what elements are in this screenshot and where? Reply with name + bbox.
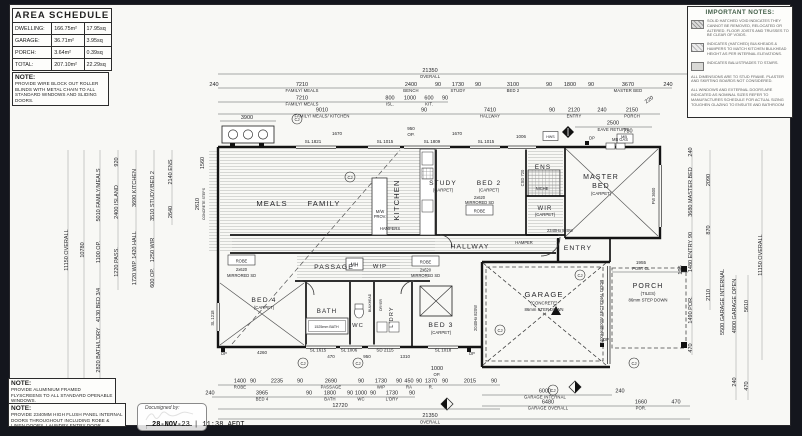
- dim: 90: [475, 82, 481, 88]
- important-note-text: INDICATES BALUSTRADES TO STAIRS.: [707, 61, 778, 71]
- dim: 90: [297, 379, 303, 385]
- robe-size-bed3: 2x620: [420, 268, 432, 273]
- room-label-bed4: BED 4: [251, 297, 276, 304]
- dryer-label: DRYER: [379, 299, 383, 311]
- dim: 2110: [706, 289, 712, 301]
- dim: 2235: [271, 379, 283, 385]
- post-cl-dim: 1955: [636, 260, 647, 265]
- dim: 1420 HALL: [132, 231, 138, 259]
- dim: 10780: [80, 242, 86, 257]
- dim: 90: [546, 82, 552, 88]
- area-row-name: PORCH:: [13, 47, 52, 58]
- dim-label: OP.: [433, 372, 440, 377]
- room-label-bed2: BED 2: [477, 180, 502, 187]
- robe-size-left: 2x620: [236, 267, 248, 272]
- area-row-name: TOTAL:: [13, 59, 52, 70]
- note-title: NOTE:: [15, 74, 106, 81]
- win-1670a: 1670: [332, 131, 343, 136]
- important-note-item: SOLID HATCHED VOID INDICATES THEY CANNOT…: [691, 19, 789, 38]
- room-label-porch: PORCH: [633, 283, 664, 290]
- room-sub-garage: (CONCRETE): [531, 301, 559, 306]
- dim: 240: [615, 389, 624, 395]
- robe-mirror-left: MIRRORED SD: [227, 273, 256, 278]
- dim-label: RA: [406, 385, 412, 390]
- dims-left: 11150 OVERALL 10780 5010 FAMILY/MEALS 11…: [64, 157, 206, 398]
- dim: 5500 GARAGE INTERNAL: [720, 269, 726, 335]
- plot-date-rest: 23 | 11:38 AEDT: [181, 421, 244, 429]
- dim-950b: 950: [363, 354, 371, 359]
- dim-label: WC: [357, 397, 364, 402]
- dim: 90: [370, 391, 376, 397]
- plot-timestamp: 28-NOV-23 | 11:38 AEDT: [152, 421, 244, 429]
- dim: 90: [442, 379, 448, 385]
- dim-label: L'DRY: [386, 397, 399, 402]
- garage-sectional-door: [608, 266, 611, 364]
- dim-label: R.: [429, 385, 434, 390]
- dim-label: WIP: [377, 385, 385, 390]
- dim-label: OVERALL: [420, 74, 441, 79]
- dim: 11150 OVERALL: [758, 234, 764, 275]
- dim: 90: [416, 379, 422, 385]
- dim: 2640: [168, 206, 174, 218]
- room-sub-bed3: (CARPET): [431, 330, 452, 335]
- dim: 3690 KITCHEN: [132, 169, 138, 207]
- floor-plan-drawing: text{fill:#26262a;font-family:"Liberatio…: [0, 0, 802, 436]
- area-row-m2: 166.75m²: [52, 23, 84, 34]
- dim-470b: 470: [327, 354, 335, 359]
- table-row: TOTAL: 207.10m² 22.29sq: [13, 59, 111, 70]
- dim: 240: [688, 147, 694, 156]
- note-body: PROVIDE WIRE BLOCK OUT ROLLER BLINDS WIT…: [15, 81, 106, 104]
- dim-1310: 1310: [400, 354, 411, 359]
- area-row-name: DWELLING:: [13, 23, 52, 34]
- dim: 2500: [607, 121, 619, 127]
- hatch-legend-icon: [691, 43, 704, 52]
- room-sub-bed2: (CARPET): [479, 188, 500, 193]
- mb-box-label: MB: [621, 134, 627, 139]
- dim: 220: [644, 95, 655, 105]
- dim: 240: [663, 82, 672, 88]
- dim: 470: [671, 400, 680, 406]
- dim: 1000: [404, 96, 416, 102]
- win-950: 950: [407, 126, 415, 131]
- dim: 12720: [332, 403, 347, 409]
- win-1006: 1006: [516, 134, 527, 139]
- dim-label: MASTER BED: [614, 88, 643, 93]
- dim: 1250 WIR: [150, 238, 156, 262]
- area-schedule-title: AREA SCHEDULE: [13, 9, 111, 23]
- room-label-master-1: MASTER: [583, 174, 619, 181]
- dim: 3900: [241, 115, 253, 121]
- room-label-entry: ENTRY: [564, 245, 592, 252]
- dim: 4800 GARAGE OPEN: [732, 279, 738, 333]
- note-internal-doors: NOTE: PROVIDE 2340MM HIGH FLUSH PANEL IN…: [8, 403, 126, 427]
- dp-label-bl: DP: [221, 351, 227, 356]
- dim: 1490 POR.: [688, 296, 694, 324]
- room-label-kitchen: KITCHEN: [392, 179, 401, 220]
- room-label-master-2: BED: [592, 183, 610, 190]
- dim: 90: [250, 379, 256, 385]
- dim: 2015: [464, 379, 476, 385]
- room-label-meals: MEALS: [256, 199, 287, 208]
- dp-label-garage: DP: [603, 337, 609, 342]
- dim: 90: [358, 379, 364, 385]
- win-sl1018: SL 1018: [435, 348, 452, 353]
- cj-label: CJ: [300, 361, 305, 366]
- dim: 1100 OP.: [96, 240, 102, 263]
- cj-label: CJ: [550, 388, 555, 393]
- docusign-label: Docusigned by:: [145, 405, 206, 411]
- win-950-op: OP.: [407, 132, 414, 137]
- dim: 5610: [744, 300, 750, 312]
- manhole-label: MH: [351, 263, 359, 269]
- area-row-m2: 36.71m²: [52, 35, 84, 46]
- win-sl1809: SL 1809: [424, 139, 441, 144]
- room-label-ens: ENS: [535, 164, 551, 171]
- cj-label: CJ: [347, 175, 352, 180]
- win-sl1015b: SL 1015: [478, 139, 495, 144]
- dim: 2090: [706, 174, 712, 186]
- dim-label: ROBE: [234, 385, 247, 390]
- room-label-study: STUDY: [429, 180, 457, 187]
- hatch-legend-icon: [691, 62, 704, 71]
- dim: 90: [306, 391, 312, 397]
- dim-label: FAMILY/ MEALS/ KITCHEN: [294, 114, 349, 119]
- dim-label: OVERALL: [420, 420, 441, 425]
- hws-label: HWS: [546, 135, 555, 139]
- microwave-label2: PROV.: [374, 214, 386, 219]
- important-note-item: INDICATES BALUSTRADES TO STAIRS.: [691, 61, 789, 71]
- dp-label-bm: DP: [469, 351, 475, 356]
- robe-label-left: ROBE: [236, 259, 248, 264]
- room-label-ldry: L'DRY: [389, 306, 395, 327]
- cj-label: CJ: [497, 328, 502, 333]
- porch-and-slab-dashed: [483, 263, 686, 365]
- dim: 2140 ENS: [168, 159, 174, 184]
- area-row-sq: 17.95sq: [85, 23, 111, 34]
- note-body: PROVIDE ALUMINIUM FRAMED FLYSCREENS TO A…: [11, 387, 113, 404]
- win-1670b: 1670: [452, 131, 463, 136]
- win-sl1006: SL 1006: [341, 348, 358, 353]
- hampers-label: HAMPERS: [380, 226, 401, 231]
- fw-window-label: FW 3600: [651, 187, 656, 204]
- dp-label-top: DP: [589, 136, 595, 141]
- cj-label: CJ: [355, 361, 360, 366]
- dim-label: PORCH: [624, 114, 640, 119]
- room-sub-study: (CARPET): [433, 188, 454, 193]
- dim: 2610: [195, 198, 201, 210]
- room-step-garage: 86mm STEP DOWN: [524, 307, 563, 312]
- dim-label: ENTRY: [567, 114, 582, 119]
- dim: 1800: [564, 82, 576, 88]
- cj-label: CJ: [577, 273, 582, 278]
- area-row-m2: 3.64m²: [52, 47, 84, 58]
- room-label-hallway: HALLWAY: [451, 244, 490, 251]
- room-label-garage: GARAGE: [524, 290, 563, 299]
- concrete-steps-label: CONCRETE STEPS: [202, 187, 206, 220]
- room-sub-porch: (TILES): [641, 291, 656, 296]
- area-row-m2: 207.10m²: [52, 59, 84, 70]
- dim: 5010 FAMILY/MEALS: [96, 168, 102, 221]
- bulkhead-label: BULKHEAD: [368, 293, 372, 312]
- dim: 90: [688, 232, 694, 238]
- sl1218-window-label: SL 1218: [210, 310, 215, 326]
- room-step-porch: 86mm STEP DOWN: [628, 298, 667, 303]
- hatch-legend-icon: [691, 20, 704, 29]
- dim: 4130 BED 3/4: [96, 288, 102, 322]
- dim-label: GARAGE OVERALL: [528, 406, 569, 411]
- robe-mirror-bed2: MIRRORED SD: [465, 200, 494, 205]
- dim-label: POR.: [636, 406, 647, 411]
- entry-door-label: 2340Hx 820W: [547, 228, 573, 233]
- dim: 1480 ENTRY: [688, 240, 694, 273]
- dim: 2820 BATH/L'DRY: [96, 327, 102, 373]
- dim-label: KIT.: [425, 102, 433, 107]
- dim: 90: [442, 96, 448, 102]
- dim-label: FAMILY/ MEALS: [285, 88, 318, 93]
- win-sd2115: SD 2115: [376, 348, 394, 353]
- sectional-door-label: 2400Hx4800W SECTIONAL DOOR: [599, 280, 604, 345]
- room-label-bath: BATH: [317, 308, 337, 315]
- dim: 195: [678, 265, 684, 274]
- important-note-text: ALL DIMENSIONS ARE TO STUD FRAME. PLASTE…: [691, 75, 789, 85]
- dim: 730: [623, 129, 632, 135]
- important-note-item: ALL WINDOWS AND EXTERNAL DOORS ARE INDIC…: [691, 88, 789, 107]
- dim: 470: [744, 381, 750, 390]
- win-sl1015a: SL 1015: [377, 139, 394, 144]
- table-row: PORCH: 3.64m² 0.39sq: [13, 47, 111, 59]
- dims-top: 21350 OVERALL 240 7210 FAMILY/ MEALS 240…: [209, 68, 672, 135]
- important-note-item: ALL DIMENSIONS ARE TO STUD FRAME. PLASTE…: [691, 75, 789, 85]
- dim-label: BED 2: [507, 88, 520, 93]
- important-note-text: INDICATES (HATCHED) BULKHEADS & HAMPERS …: [707, 42, 789, 56]
- cj-label: CJ: [631, 361, 636, 366]
- dim-label: HALLWAY: [480, 114, 500, 119]
- csd-label: CSD 720: [520, 169, 525, 186]
- dim: 240: [597, 108, 606, 114]
- dim: 3680 MASTER BED: [688, 167, 694, 217]
- hamper-label: HAMPER: [515, 240, 533, 245]
- room-sub-wir: (CARPET): [535, 212, 556, 217]
- dim: 600 OP.: [150, 268, 156, 288]
- important-note-item: INDICATES (HATCHED) BULKHEADS & HAMPERS …: [691, 42, 789, 56]
- dim: 90: [347, 391, 353, 397]
- niche-label: NICHE: [536, 186, 549, 191]
- dim: 90: [435, 82, 441, 88]
- area-row-sq: 3.95sq: [85, 35, 111, 46]
- dim-label: BED 4: [256, 397, 269, 402]
- area-row-name: GARAGE:: [13, 35, 52, 46]
- important-note-text: ALL WINDOWS AND EXTERNAL DOORS ARE INDIC…: [691, 88, 789, 107]
- win-sl1615: SL 1615: [310, 348, 327, 353]
- screenshot-stage: text{fill:#26262a;font-family:"Liberatio…: [0, 0, 802, 436]
- dim-label: BENCH: [403, 88, 418, 93]
- area-row-sq: 22.29sq: [85, 59, 111, 70]
- room-label-wip: WIP: [373, 264, 387, 270]
- dims-right: 240 3680 MASTER BED 90 1480 ENTRY 1490 P…: [678, 147, 764, 390]
- dim-label: FAMILY/ MEALS: [285, 102, 318, 107]
- dim: 240: [205, 391, 214, 397]
- dim: 90: [588, 82, 594, 88]
- room-sub-master: (CARPET): [591, 191, 612, 196]
- table-row: GARAGE: 36.71m² 3.95sq: [13, 35, 111, 47]
- win-sl1821: SL 1821: [305, 139, 322, 144]
- dim: 920: [114, 157, 120, 166]
- dim: 470: [688, 343, 694, 352]
- dim: 1220 PASS.: [114, 247, 120, 277]
- note-blinds: NOTE: PROVIDE WIRE BLOCK OUT ROLLER BLIN…: [12, 72, 109, 106]
- robe-label-bed3: ROBE: [420, 260, 432, 265]
- garage-internal-door-label: 2040Hx 820W: [473, 305, 478, 331]
- bath-tub-label: 1525mm BATH: [314, 325, 339, 329]
- important-notes-box: IMPORTANT NOTES: SOLID HATCHED VOID INDI…: [687, 6, 793, 118]
- dim: 240: [732, 377, 738, 386]
- note-title: NOTE:: [11, 405, 123, 412]
- important-note-text: SOLID HATCHED VOID INDICATES THEY CANNOT…: [707, 19, 789, 38]
- bed3-void-square: [420, 286, 452, 316]
- dim-label: BATH: [324, 397, 335, 402]
- room-label-passage: PASSAGE: [314, 264, 354, 271]
- dim: 90: [396, 379, 402, 385]
- dim: 870: [706, 225, 712, 234]
- post-cl-label: POST CL: [632, 266, 650, 271]
- table-row: DWELLING: 166.75m² 17.95sq: [13, 23, 111, 35]
- dim: 90: [409, 391, 415, 397]
- note-body: PROVIDE 2340MM HIGH FLUSH PANEL INTERNAL…: [11, 412, 123, 427]
- robe-mirror-bed3: MIRRORED SD: [411, 273, 440, 278]
- room-label-bed3: BED 3: [428, 322, 453, 329]
- room-label-family: FAMILY: [307, 199, 340, 208]
- dim: 1720 WIP: [132, 261, 138, 285]
- plot-date-bold: 28-NOV-: [152, 421, 181, 429]
- area-schedule-table: AREA SCHEDULE DWELLING: 166.75m² 17.95sq…: [12, 8, 112, 71]
- dim: 11150 OVERALL: [64, 229, 70, 270]
- robe-label-bed2: ROBE: [474, 209, 486, 214]
- dim-label: STUDY: [451, 88, 466, 93]
- dim-label: PASSAGE: [321, 385, 342, 390]
- area-row-sq: 0.39sq: [85, 47, 111, 58]
- dim: 21350: [422, 413, 437, 419]
- dim: 2400 ISLAND: [114, 185, 120, 219]
- dim: 240: [209, 82, 218, 88]
- dim-label: ISL.: [386, 102, 394, 107]
- dim-4260: 4260: [257, 350, 268, 355]
- dim: 90: [549, 108, 555, 114]
- dim: 90: [491, 379, 497, 385]
- dim: 90: [421, 108, 427, 114]
- dim: 3510 STUDY/BED 2: [150, 171, 156, 221]
- room-sub-bed4: (CARPET): [254, 305, 275, 310]
- dim: 1560: [200, 157, 206, 169]
- note-flyscreens: NOTE: PROVIDE ALUMINIUM FRAMED FLYSCREEN…: [8, 378, 116, 406]
- note-title: NOTE:: [11, 380, 113, 387]
- important-notes-title: IMPORTANT NOTES:: [688, 9, 792, 16]
- room-label-wc: WC: [352, 323, 364, 329]
